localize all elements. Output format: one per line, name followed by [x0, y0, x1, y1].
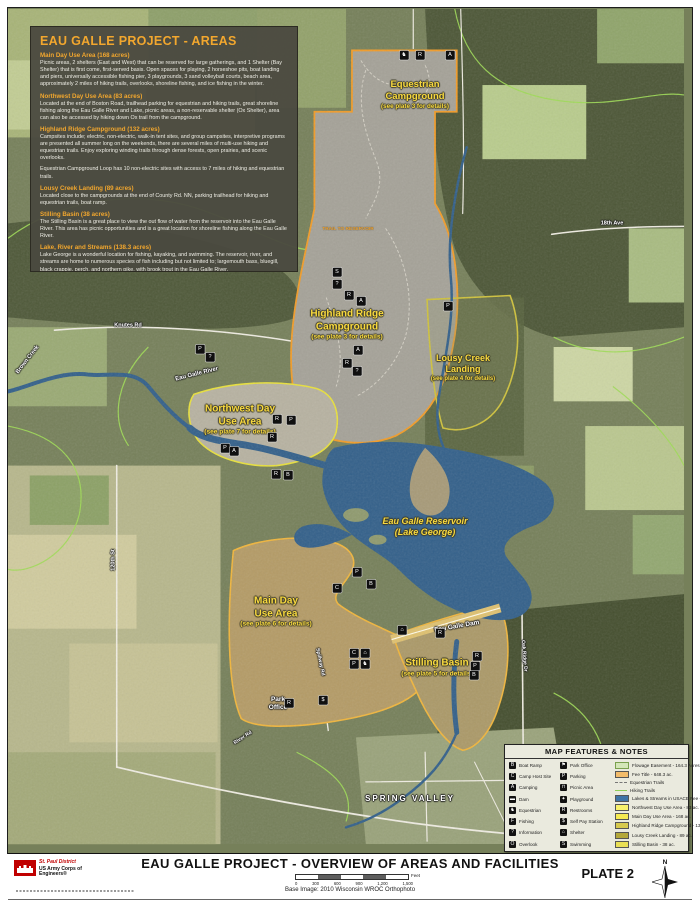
north-letter: N	[663, 859, 668, 866]
info-section-body: Picnic areas, 2 shelters (East and West)…	[40, 60, 288, 89]
legend-facility-label: Swimming	[570, 842, 591, 847]
info-section: Stilling Basin (38 acres)The Stilling Ba…	[40, 211, 288, 240]
self-pay-icon: $	[319, 696, 328, 705]
camping-icon: A	[509, 784, 516, 791]
information-icon: ?	[509, 829, 516, 836]
legend-facility-label: Dam	[519, 797, 529, 802]
camping-icon: A	[357, 297, 366, 306]
legend-facility-row: $Self Pay Station	[560, 818, 615, 825]
legend-area-label: Main Day Use Area - 168 ac.	[632, 814, 691, 819]
playground-icon: ✦	[560, 796, 567, 803]
camping-icon: A	[446, 51, 455, 60]
restrooms-icon: R	[343, 359, 352, 368]
legend-area-label: Flowage Easement - 164.3 Acres (ac.)	[632, 763, 700, 768]
label-lousy-creek: Lousy CreekLanding(see plate 4 for detai…	[431, 353, 495, 383]
label-reservoir: Eau Galle Reservoir(Lake George)	[382, 516, 467, 539]
legend-facility-row: SSwimming	[560, 841, 615, 848]
legend-facility-row: RRestrooms	[560, 807, 615, 814]
legend-color-swatch	[615, 795, 629, 802]
info-section: Equestrian Campground Loop has 10 non-el…	[40, 166, 288, 180]
legend-area-row: Equestrian Trails	[615, 780, 685, 785]
overlook-icon: O	[509, 841, 516, 848]
legend-area-row: Lakes & Streams in USACE Fee - 138.3 ac.	[615, 795, 685, 802]
legend-facility-label: Boat Ramp	[519, 763, 542, 768]
fishing-icon: F	[509, 818, 516, 825]
legend-facilities-right: ⚑Park OfficePParking⊓Picnic Area✦Playgro…	[560, 762, 615, 850]
label-highland-ridge: Highland RidgeCampground(see plate 3 for…	[310, 308, 383, 341]
legend-color-swatch	[615, 841, 629, 848]
title-block: St. Paul District US Army Corps of Engin…	[8, 853, 692, 900]
plate-number: PLATE 2	[582, 866, 635, 881]
legend-color-swatch	[615, 822, 629, 829]
legend-color-swatch	[615, 771, 629, 778]
label-trail-to-reservoir: TRAIL TO RESERVOIR	[322, 227, 373, 233]
camp-host-icon: C	[350, 649, 359, 658]
legend-facility-row: OOverlook	[509, 841, 560, 848]
legend-facility-label: Camping	[519, 785, 537, 790]
camp-host-icon: C	[333, 584, 342, 593]
legend-area-label: Lousy Creek Landing - 89 ac.	[632, 833, 692, 838]
legend-area-row: Lousy Creek Landing - 89 ac.	[615, 832, 685, 839]
boat-ramp-icon: B	[367, 580, 376, 589]
scale-bar: Feet 03006009001,2001,500	[295, 874, 425, 886]
legend-area-row: Main Day Use Area - 168 ac.	[615, 813, 685, 820]
info-box-title: EAU GALLE PROJECT - AREAS	[40, 34, 288, 48]
info-section-heading: Lake, River and Streams (138.3 acres)	[40, 244, 288, 251]
shelter-icon: ⌂	[560, 829, 567, 836]
legend-facility-row: ⌂Shelter	[560, 829, 615, 836]
info-section-body: Located close to the campgrounds at the …	[40, 193, 288, 207]
info-section-heading: Stilling Basin (38 acres)	[40, 211, 288, 218]
scale-tick: 0	[295, 881, 297, 886]
legend-color-swatch	[615, 762, 629, 769]
north-arrow: N	[652, 856, 678, 903]
legend-facility-label: Information	[519, 830, 542, 835]
label-18th-ave: 18th Ave	[601, 221, 624, 228]
camping-icon: A	[354, 346, 363, 355]
legend-facility-label: Parking	[570, 774, 586, 779]
swimming-icon: S	[560, 841, 567, 848]
legend-area-row: Hiking Trails	[615, 788, 685, 793]
label-oak-ridge-dr: Oak Ridge Dr	[520, 640, 529, 672]
info-section-heading: Highland Ridge Campground (132 acres)	[40, 126, 288, 133]
legend-facility-row: ?Information	[509, 829, 560, 836]
dam-icon: ▬	[509, 796, 516, 803]
legend-facility-row: CCamp Host Site	[509, 773, 560, 780]
boat-ramp-icon: B	[284, 471, 293, 480]
equestrian-icon: ♞	[400, 51, 409, 60]
restrooms-icon: R	[272, 470, 281, 479]
legend-area-label: Lakes & Streams in USACE Fee - 138.3 ac.	[632, 796, 700, 801]
legend-facility-row: ⚑Park Office	[560, 762, 615, 769]
label-120th-st: 120th St	[111, 549, 118, 570]
equestrian-icon: ♞	[361, 660, 370, 669]
map-sheet: EquestrianCampground(see plate 3 for det…	[0, 0, 700, 904]
camping-icon: A	[230, 447, 239, 456]
legend-color-swatch	[615, 804, 629, 811]
parking-icon: P	[353, 568, 362, 577]
base-image-credit: Base Image: 2010 Wisconsin WROC Orthopho…	[8, 887, 692, 893]
scale-tick: 1,500	[403, 881, 413, 886]
legend-facility-row: PParking	[560, 773, 615, 780]
restrooms-icon: R	[273, 415, 282, 424]
legend-facility-label: Fishing	[519, 819, 534, 824]
legend-facilities-left: BBoat RampCCamp Host SiteACamping▬Dam♞Eq…	[509, 762, 560, 850]
legend-facility-label: Picnic Area	[570, 785, 593, 790]
parking-icon: P	[196, 345, 205, 354]
info-section: Lake, River and Streams (138.3 acres)Lak…	[40, 244, 288, 272]
restrooms-icon: R	[345, 291, 354, 300]
info-section-body: Equestrian Campground Loop has 10 non-el…	[40, 166, 288, 180]
information-icon: ?	[206, 353, 215, 362]
legend-facility-label: Park Office	[570, 763, 593, 768]
label-river-rd: River Rd	[233, 730, 254, 746]
legend-facility-label: Playground	[570, 797, 593, 802]
legend-facility-row: ♞Equestrian	[509, 807, 560, 814]
swimming-icon: S	[333, 268, 342, 277]
parking-icon: P	[287, 416, 296, 425]
restrooms-icon: R	[560, 807, 567, 814]
scale-bar-segments	[295, 874, 409, 880]
information-icon: ?	[353, 367, 362, 376]
legend-facility-row: BBoat Ramp	[509, 762, 560, 769]
label-eau-galle-river: Eau Galle River	[175, 366, 220, 384]
label-equestrian-campground: EquestrianCampground(see plate 3 for det…	[381, 79, 449, 111]
info-section: Main Day Use Area (168 acres)Picnic area…	[40, 52, 288, 89]
label-spillway-rd: Spillway Rd	[314, 648, 326, 677]
legend-facility-label: Overlook	[519, 842, 537, 847]
info-section: Lousy Creek Landing (89 acres)Located cl…	[40, 185, 288, 207]
legend-facility-row: ▬Dam	[509, 796, 560, 803]
info-section-heading: Northwest Day Use Area (83 acres)	[40, 93, 288, 100]
label-stilling-basin: Stilling Basin(see plate 5 for details)	[401, 658, 472, 679]
legend-area-row: Flowage Easement - 164.3 Acres (ac.)	[615, 762, 685, 769]
legend-facility-label: Equestrian	[519, 808, 541, 813]
info-section-heading: Main Day Use Area (168 acres)	[40, 52, 288, 59]
information-icon: ?	[333, 280, 342, 289]
boat-ramp-icon: B	[509, 762, 516, 769]
boat-ramp-icon: B	[470, 671, 479, 680]
info-sections: Main Day Use Area (168 acres)Picnic area…	[40, 52, 288, 272]
legend-line-swatch	[615, 790, 627, 791]
legend-area-label: Fee Title - 648.3 ac.	[632, 772, 673, 777]
legend-facility-label: Restrooms	[570, 808, 592, 813]
legend-title: MAP FEATURES & NOTES	[505, 745, 688, 759]
label-spring-valley: SPRING VALLEY	[365, 794, 455, 804]
scale-tick: 900	[356, 881, 363, 886]
restrooms-icon: R	[285, 699, 294, 708]
info-section-body: Lake George is a wonderful location for …	[40, 252, 288, 272]
info-box: EAU GALLE PROJECT - AREAS Main Day Use A…	[30, 26, 298, 272]
legend-line-swatch	[615, 782, 627, 783]
legend-areas: Flowage Easement - 164.3 Acres (ac.)Fee …	[615, 762, 685, 850]
legend-area-label: Hiking Trails	[630, 788, 655, 793]
legend-facility-row: FFishing	[509, 818, 560, 825]
legend-facility-row: ⊓Picnic Area	[560, 784, 615, 791]
legend-facility-label: Camp Host Site	[519, 774, 551, 779]
info-section-body: Located at the end of Boston Road, trail…	[40, 101, 288, 122]
shelter-icon: ⌂	[398, 626, 407, 635]
parking-icon: P	[471, 662, 480, 671]
legend-facility-label: Shelter	[570, 830, 585, 835]
restrooms-icon: R	[473, 652, 482, 661]
legend-facility-row: ✦Playground	[560, 796, 615, 803]
legend-area-row: Fee Title - 648.3 ac.	[615, 771, 685, 778]
scale-tick: 300	[312, 881, 319, 886]
legend-area-label: Equestrian Trails	[630, 780, 664, 785]
parking-icon: P	[444, 302, 453, 311]
parking-icon: P	[221, 444, 230, 453]
legend-area-label: Highland Ridge Campground - 132 ac.	[632, 823, 700, 828]
legend: MAP FEATURES & NOTES BBoat RampCCamp Hos…	[504, 744, 689, 852]
info-section-heading: Lousy Creek Landing (89 acres)	[40, 185, 288, 192]
legend-area-row: Northwest Day Use Area - 83 ac.	[615, 804, 685, 811]
legend-area-label: Northwest Day Use Area - 83 ac.	[632, 805, 699, 810]
legend-area-label: Stilling Basin - 38 ac.	[632, 842, 675, 847]
legend-color-swatch	[615, 832, 629, 839]
info-section: Northwest Day Use Area (83 acres)Located…	[40, 93, 288, 122]
label-main-day-use: Main DayUse Area(see plate 6 for details…	[240, 595, 311, 628]
parking-icon: P	[560, 773, 567, 780]
legend-facility-label: Self Pay Station	[570, 819, 603, 824]
legend-area-row: Highland Ridge Campground - 132 ac.	[615, 822, 685, 829]
legend-color-swatch	[615, 813, 629, 820]
label-knutes-rd: Knutes Rd	[114, 323, 142, 330]
restrooms-icon: R	[268, 433, 277, 442]
scale-tick: 600	[334, 881, 341, 886]
label-northwest-day-use: Northwest DayUse Area(see plate 7 for de…	[204, 403, 275, 436]
camp-host-site-icon: C	[509, 773, 516, 780]
park-office-icon: ⚑	[560, 762, 567, 769]
legend-columns: BBoat RampCCamp Host SiteACamping▬Dam♞Eq…	[505, 759, 688, 852]
scale-ticks: 03006009001,2001,500	[295, 881, 413, 886]
picnic-area-icon: ⊓	[560, 784, 567, 791]
info-section-body: The Stilling Basin is a great place to v…	[40, 219, 288, 240]
legend-facility-row: ACamping	[509, 784, 560, 791]
label-brown-creek: Brown Creek	[15, 345, 41, 376]
info-section: Highland Ridge Campground (132 acres)Cam…	[40, 126, 288, 163]
scale-tick: 1,200	[377, 881, 387, 886]
shelter-icon: ⌂	[361, 649, 370, 658]
info-section-body: Campsites include; electric, non-electri…	[40, 134, 288, 163]
scale-unit: Feet	[411, 873, 420, 878]
equestrian-icon: ♞	[509, 807, 516, 814]
restrooms-icon: R	[416, 51, 425, 60]
parking-icon: P	[350, 660, 359, 669]
legend-area-row: Stilling Basin - 38 ac.	[615, 841, 685, 848]
restrooms-icon: R	[436, 629, 445, 638]
self-pay-station-icon: $	[560, 818, 567, 825]
